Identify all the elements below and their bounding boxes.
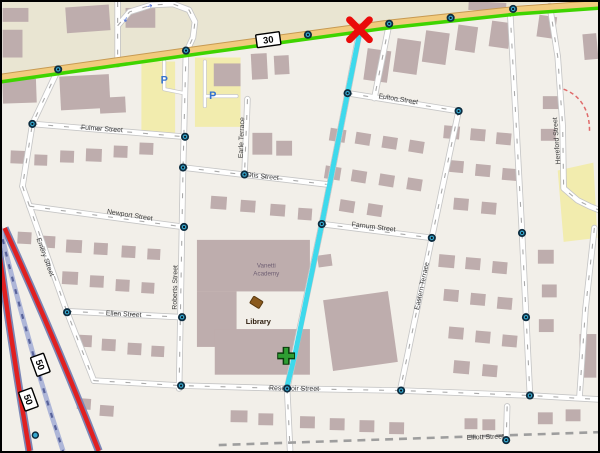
building [323,291,398,371]
building [455,25,478,53]
building [62,271,79,285]
building [197,240,310,292]
junction-node [526,391,534,399]
building [465,257,481,270]
building [381,136,398,150]
building [66,239,83,253]
junction-node [385,20,393,28]
building [90,275,104,288]
building [496,132,512,145]
junction-node [178,313,186,321]
building [113,145,127,157]
building [86,148,102,161]
parking-icon: P [209,90,216,102]
academy-label: Vanetti [257,263,276,270]
building [127,343,141,356]
building [438,254,455,268]
building [317,254,332,268]
building [497,297,513,310]
junction-node [181,133,189,141]
building [538,412,553,424]
building [151,346,164,358]
building [475,330,491,343]
building [300,416,315,428]
building [34,154,47,165]
building [582,33,598,60]
building [492,261,508,274]
building [17,232,31,245]
street-label-elliott-street: Elliott Street [467,433,505,441]
junction-node [283,384,291,392]
building [240,200,256,213]
building [406,177,423,191]
building [214,63,241,86]
building [502,168,518,181]
building [422,30,450,65]
junction-node [304,31,312,39]
building [121,245,135,258]
building [115,279,129,292]
junction-node [28,120,36,128]
junction-node [54,65,62,73]
junction-node [344,89,352,97]
building [475,164,491,177]
street-label-earle-terrace: Earle Terrace [238,117,246,158]
building [539,319,554,332]
building [502,334,518,347]
junction-node [509,5,517,13]
svg-text:30: 30 [262,33,274,45]
junction-node [455,107,463,115]
junction-node [182,47,190,55]
building [330,418,345,430]
map-svg[interactable]: Fulmer StreetOtis StreetNewport StreetEl… [2,2,598,451]
junction-node [518,229,526,237]
building [99,96,126,113]
building [543,96,559,109]
junction-node [318,220,326,228]
building [359,420,374,432]
building [3,30,23,58]
building [276,141,292,156]
building [408,140,425,154]
building [470,293,486,306]
junction-node [428,234,436,242]
building [482,419,495,430]
building [470,128,486,141]
building [3,8,29,22]
building [453,360,470,374]
junction-node [63,308,71,316]
building [542,284,557,297]
junction-node [240,170,248,178]
street-label-reservoir-street: Reservoir Street [269,385,319,393]
route-shield-30: 30 [256,32,281,48]
building [252,133,272,155]
building [481,202,497,215]
building [298,208,313,221]
building [258,413,273,425]
building [378,173,395,187]
junction-node [397,386,405,394]
building [448,326,464,339]
building [351,169,368,183]
building [274,55,290,75]
building [443,289,459,302]
building [94,242,108,255]
building [139,143,153,155]
junction-node [179,163,187,171]
junction-node [502,436,510,444]
junction-node [522,313,530,321]
building [210,196,227,210]
building [339,199,356,213]
building [101,339,115,352]
building [355,132,372,146]
junction-node [180,223,188,231]
building [393,38,421,75]
building [99,405,114,417]
building [141,282,154,294]
academy-label: Academy [253,271,280,278]
building [538,250,554,264]
library-label: Library [246,317,272,326]
building [453,198,469,211]
building [270,204,286,217]
building [65,4,110,33]
street-label-roberts-street: Roberts Street [172,265,180,310]
building [231,410,248,422]
building [389,422,404,434]
map-canvas[interactable]: Fulmer StreetOtis StreetNewport StreetEl… [0,0,600,453]
junction-node [447,14,455,22]
building [566,409,581,421]
building [251,53,268,80]
parking-icon: P [161,74,168,86]
building [482,364,498,377]
building [367,203,384,217]
railway-node [32,432,38,438]
landuse-parking-lot-west [141,61,175,132]
building [60,150,74,162]
junction-node [177,382,185,390]
building [147,248,160,260]
building [465,418,478,429]
